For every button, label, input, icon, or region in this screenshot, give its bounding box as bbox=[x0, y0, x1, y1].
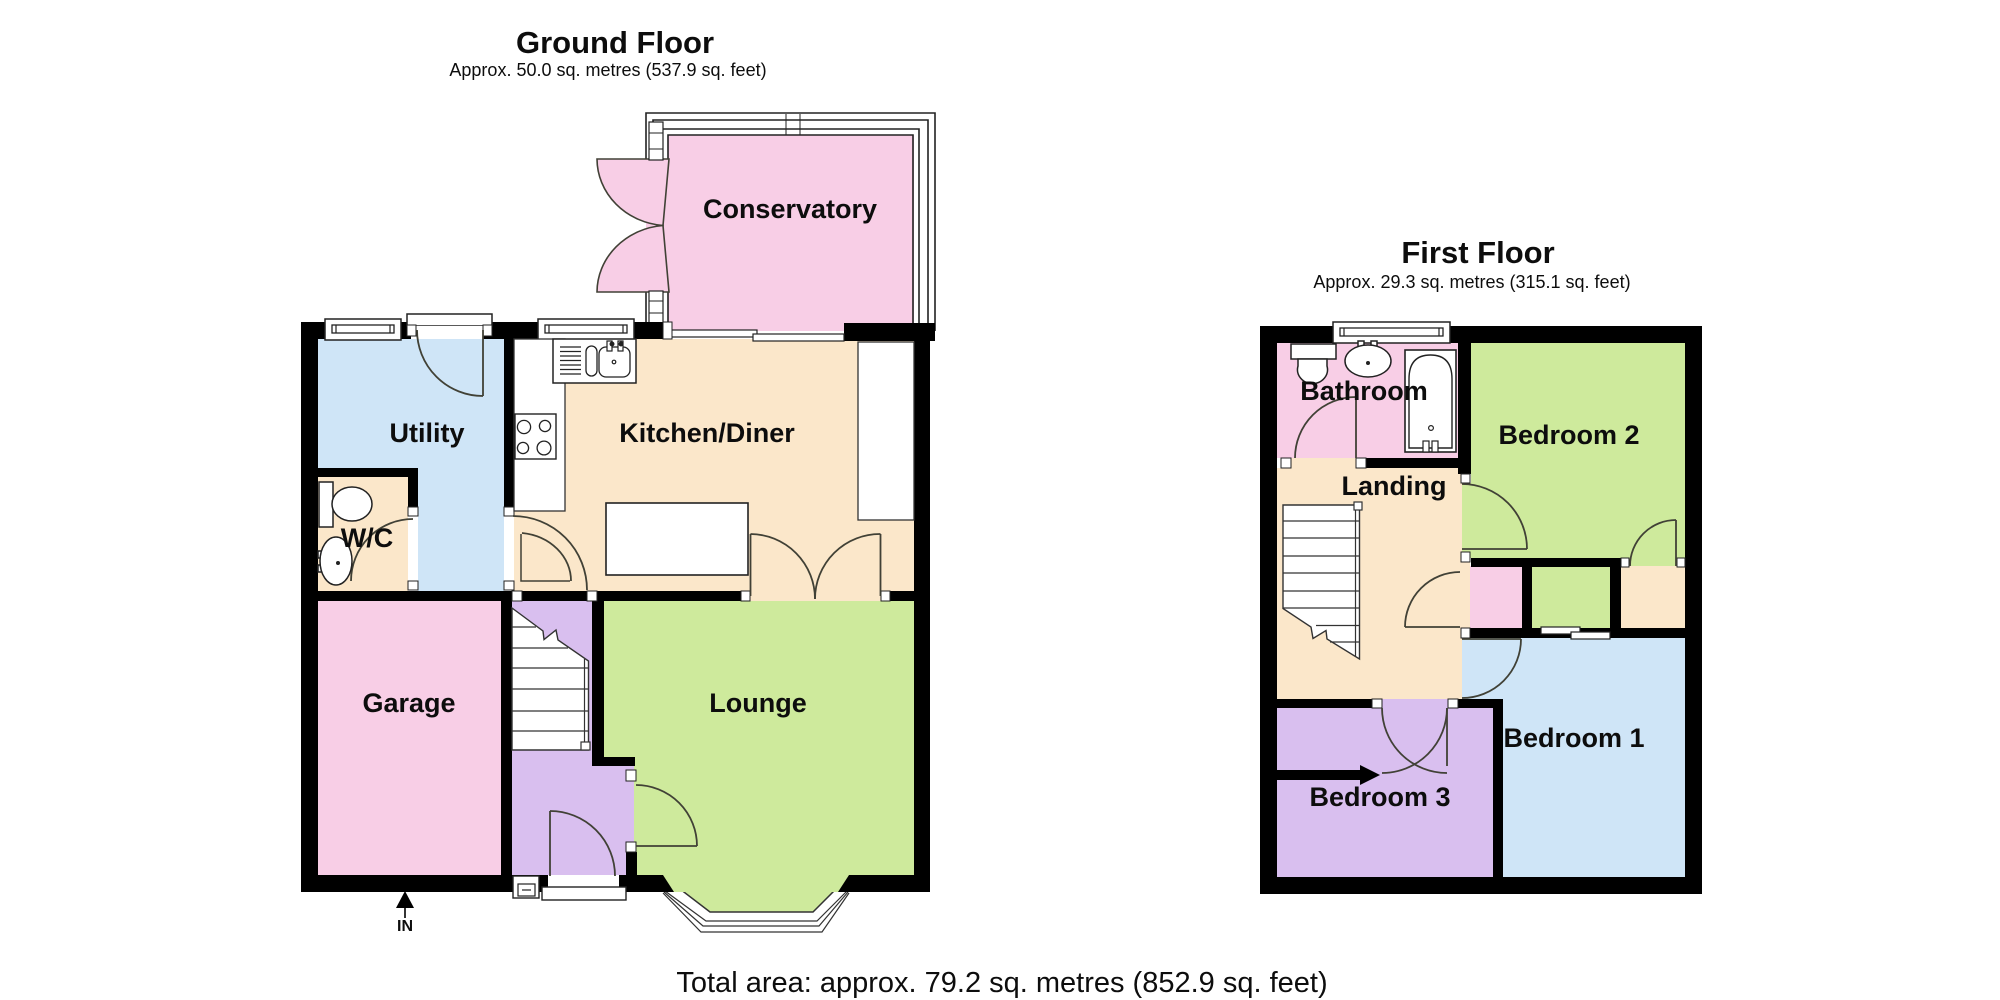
svg-text:Kitchen/Diner: Kitchen/Diner bbox=[619, 418, 795, 448]
svg-text:IN: IN bbox=[397, 918, 413, 935]
svg-text:Landing: Landing bbox=[1342, 471, 1447, 501]
svg-text:Ground Floor: Ground Floor bbox=[516, 25, 714, 60]
svg-text:Total area: approx. 79.2 sq. m: Total area: approx. 79.2 sq. metres (852… bbox=[676, 967, 1327, 999]
svg-text:Utility: Utility bbox=[389, 418, 464, 448]
svg-text:Conservatory: Conservatory bbox=[703, 194, 877, 224]
svg-text:Bedroom 3: Bedroom 3 bbox=[1309, 782, 1450, 812]
svg-text:Garage: Garage bbox=[362, 688, 455, 718]
svg-text:Approx. 50.0 sq. metres (537.9: Approx. 50.0 sq. metres (537.9 sq. feet) bbox=[449, 60, 766, 80]
svg-text:Lounge: Lounge bbox=[709, 688, 806, 718]
svg-text:Bedroom 2: Bedroom 2 bbox=[1498, 420, 1639, 450]
svg-text:Bathroom: Bathroom bbox=[1300, 376, 1428, 406]
svg-text:Bedroom 1: Bedroom 1 bbox=[1503, 723, 1644, 753]
svg-text:Approx. 29.3 sq. metres (315.1: Approx. 29.3 sq. metres (315.1 sq. feet) bbox=[1313, 272, 1630, 292]
svg-text:W/C: W/C bbox=[341, 523, 393, 553]
svg-text:First Floor: First Floor bbox=[1401, 235, 1554, 270]
